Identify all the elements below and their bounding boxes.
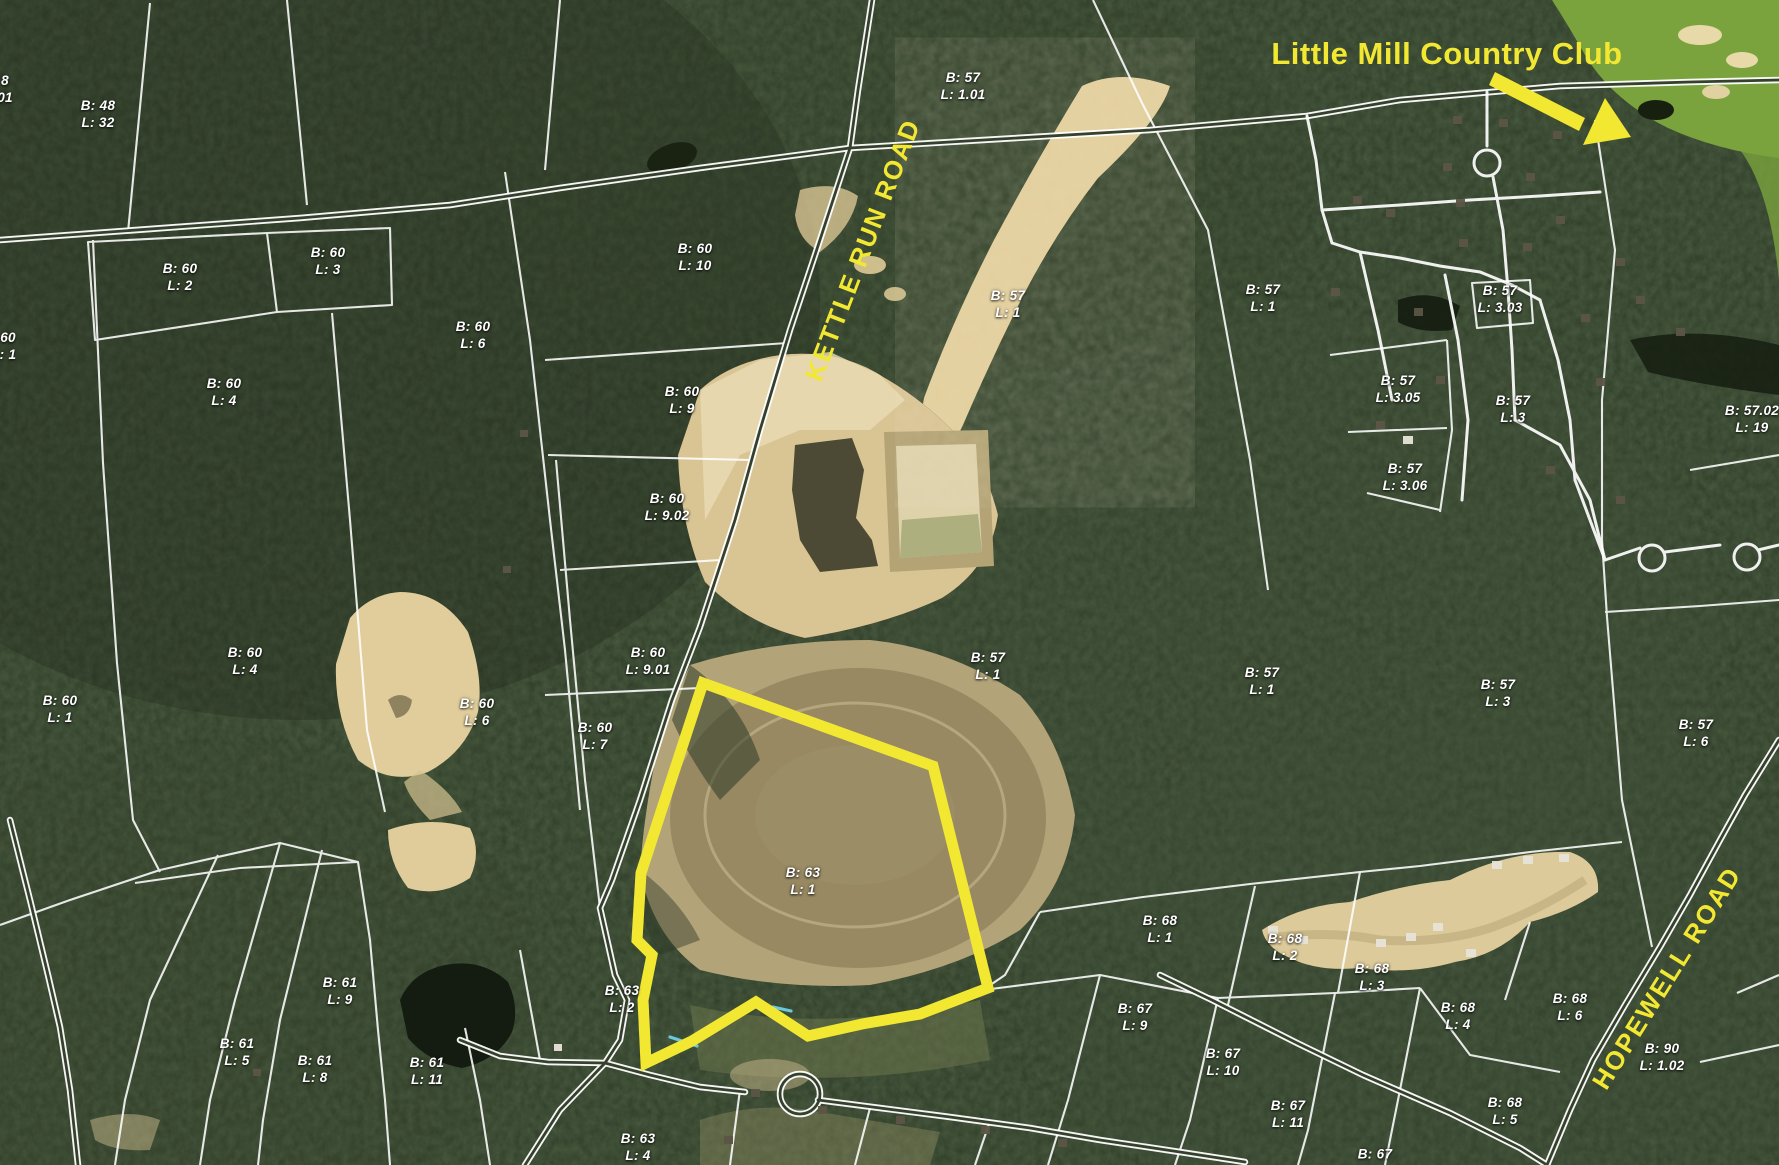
- parcel-label: B: 61 L: 9: [323, 975, 358, 1009]
- parcel-label: 60 : 1: [0, 330, 16, 364]
- parcel-label: B: 57 L: 3: [1496, 393, 1531, 427]
- parcel-label: 8 01: [0, 73, 13, 107]
- parcel-label: B: 68 L: 3: [1355, 961, 1390, 995]
- parcel-label: B: 57 L: 3.05: [1376, 373, 1421, 407]
- parcel-label: B: 61 L: 5: [220, 1036, 255, 1070]
- parcel-label: B: 60 L: 3: [311, 245, 346, 279]
- parcel-label: B: 57 L: 1.01: [941, 70, 986, 104]
- parcel-label: B: 61 L: 8: [298, 1053, 333, 1087]
- parcel-label: B: 60 L: 2: [163, 261, 198, 295]
- parcel-label: B: 60 L: 6: [460, 696, 495, 730]
- parcel-label: B: 60 L: 9: [665, 384, 700, 418]
- parcel-label: B: 60 L: 9.02: [645, 491, 690, 525]
- parcel-label: B: 60 L: 7: [578, 720, 613, 754]
- parcel-label: B: 63 L: 2: [605, 983, 640, 1017]
- parcel-label: B: 68 L: 5: [1488, 1095, 1523, 1129]
- parcel-label: B: 63 L: 4: [621, 1131, 656, 1165]
- parcel-label: B: 57 L: 3.03: [1478, 283, 1523, 317]
- parcel-label: B: 63 L: 1: [786, 865, 821, 899]
- club-arrow-icon: [1489, 72, 1631, 145]
- parcel-label: B: 57.02 L: 19: [1725, 403, 1779, 437]
- parcel-label: B: 57 L: 1: [1245, 665, 1280, 699]
- parcel-label: B: 68 L: 1: [1143, 913, 1178, 947]
- parcel-label: B: 57 L: 3.06: [1383, 461, 1428, 495]
- parcel-label: B: 67 L: 11: [1271, 1098, 1306, 1132]
- parcel-label: B: 67 L: 9: [1118, 1001, 1153, 1035]
- parcel-label: B: 60 L: 1: [43, 693, 78, 727]
- parcel-label: B: 60 L: 4: [228, 645, 263, 679]
- parcel-label: B: 67: [1358, 1147, 1393, 1164]
- parcel-label: B: 48 L: 32: [81, 98, 116, 132]
- parcel-label: B: 60 L: 4: [207, 376, 242, 410]
- parcel-label: B: 68 L: 4: [1441, 1000, 1476, 1034]
- parcel-label: B: 57 L: 1: [971, 650, 1006, 684]
- parcel-label: B: 68 L: 6: [1553, 991, 1588, 1025]
- parcel-label: B: 57 L: 6: [1679, 717, 1714, 751]
- parcel-label: B: 90 L: 1.02: [1640, 1041, 1685, 1075]
- parcel-label: B: 68 L: 2: [1268, 931, 1303, 965]
- parcel-label: B: 60 L: 9.01: [626, 645, 671, 679]
- aerial-parcel-map: B: 48 L: 328 01B: 60 L: 2B: 60 L: 360 : …: [0, 0, 1779, 1165]
- parcel-label: B: 57 L: 1: [991, 288, 1026, 322]
- parcel-label: B: 57 L: 1: [1246, 282, 1281, 316]
- parcel-label: B: 60 L: 6: [456, 319, 491, 353]
- parcel-label: B: 67 L: 10: [1206, 1046, 1241, 1080]
- club-label: Little Mill Country Club: [1271, 36, 1622, 72]
- parcel-label: B: 60 L: 10: [678, 241, 713, 275]
- parcel-label: B: 57 L: 3: [1481, 677, 1516, 711]
- parcel-label: B: 61 L: 11: [410, 1055, 445, 1089]
